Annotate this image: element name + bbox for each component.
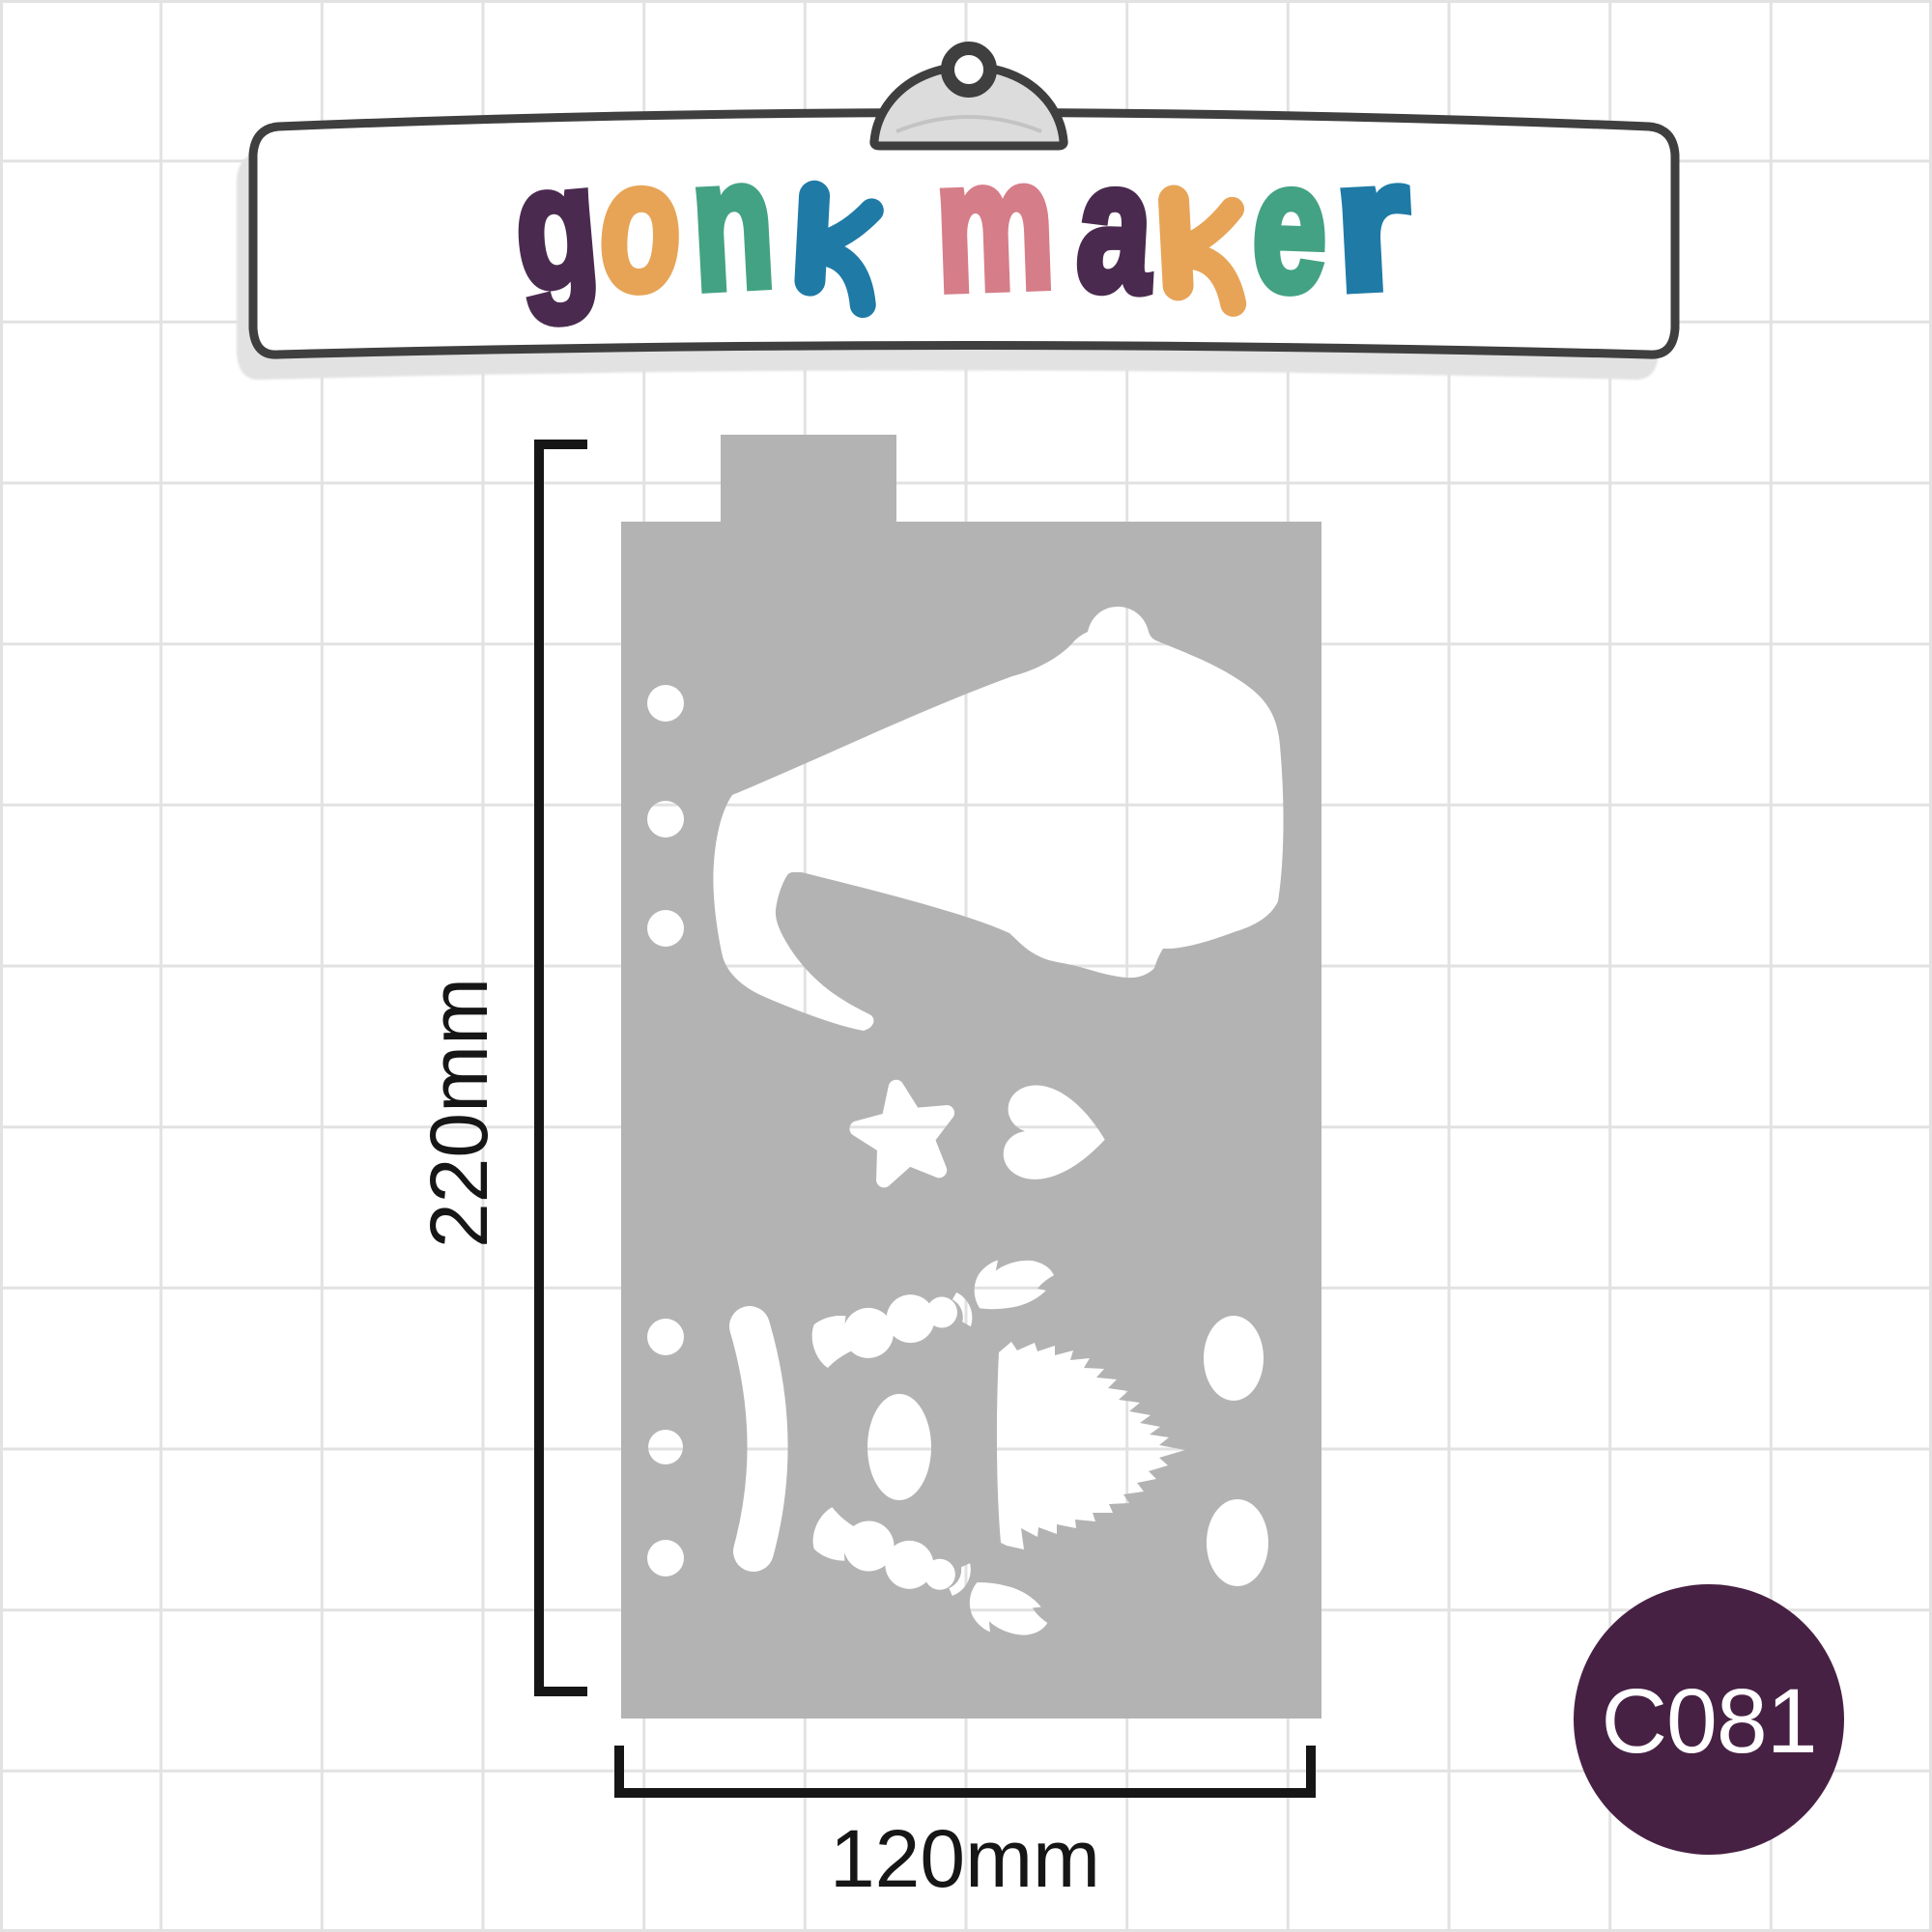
svg-text:C081: C081 bbox=[1601, 1670, 1816, 1773]
svg-text:220mm: 220mm bbox=[413, 978, 504, 1248]
svg-text:120mm: 120mm bbox=[830, 1813, 1100, 1904]
